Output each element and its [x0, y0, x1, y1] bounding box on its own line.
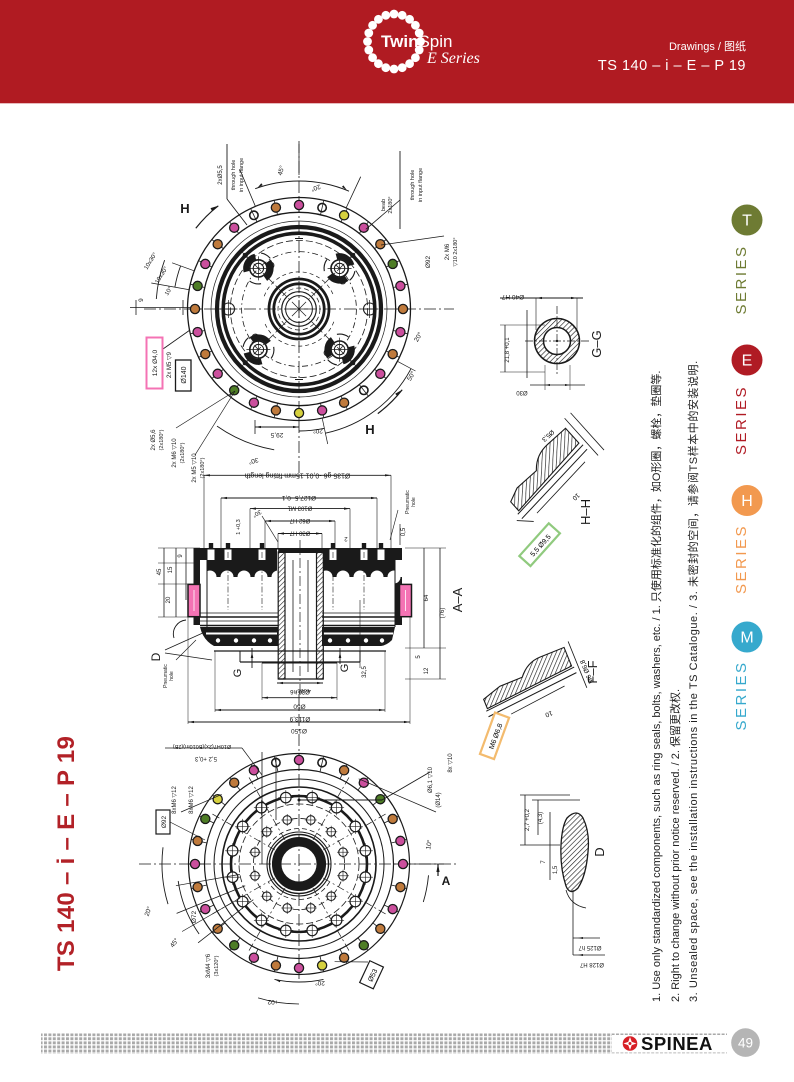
svg-text:3. Unsealed space, see the ins: 3. Unsealed space, see the installation … — [686, 360, 700, 1002]
svg-text:2x180°: 2x180° — [388, 196, 394, 213]
svg-text:Ø113,9: Ø113,9 — [289, 715, 310, 722]
svg-text:29,5: 29,5 — [270, 431, 283, 438]
svg-text:Ø72: Ø72 — [191, 910, 198, 923]
svg-text:F–F: F–F — [585, 660, 600, 683]
svg-text:Ø6,1 ▽10: Ø6,1 ▽10 — [428, 766, 434, 793]
svg-text:Drawings / 图纸: Drawings / 图纸 — [669, 40, 746, 53]
svg-text:H: H — [365, 422, 374, 437]
svg-text:20°: 20° — [313, 427, 323, 435]
svg-text:(4,3): (4,3) — [538, 812, 544, 824]
svg-text:Ø128 H7: Ø128 H7 — [579, 961, 604, 967]
svg-text:(3x120°): (3x120°) — [214, 955, 220, 976]
svg-text:H: H — [180, 201, 189, 216]
svg-text:8x ▽10: 8x ▽10 — [448, 753, 454, 773]
svg-text:1. Use only standardized compo: 1. Use only standardized components, suc… — [649, 371, 663, 1002]
svg-text:8xM6 ▽12: 8xM6 ▽12 — [172, 786, 178, 814]
svg-text:beab: beab — [381, 199, 387, 211]
svg-text:49: 49 — [738, 1036, 753, 1051]
svg-text:2,7 +0,2: 2,7 +0,2 — [525, 808, 531, 831]
svg-text:Ø30 H7: Ø30 H7 — [289, 530, 310, 536]
svg-text:2. Right to change without pri: 2. Right to change without prior notice … — [668, 689, 682, 1002]
svg-text:TwinSpin: TwinSpin — [381, 32, 452, 51]
svg-text:Ø125 h7: Ø125 h7 — [578, 944, 602, 950]
svg-text:TS 140 – i – E – P 19: TS 140 – i – E – P 19 — [598, 58, 746, 74]
svg-text:through hole: through hole — [410, 170, 416, 201]
svg-text:20: 20 — [166, 596, 172, 603]
svg-text:1,5: 1,5 — [553, 865, 559, 874]
svg-text:2x M5 ▽9: 2x M5 ▽9 — [167, 351, 173, 378]
svg-text:D: D — [592, 847, 607, 856]
svg-text:A–A: A–A — [450, 587, 465, 612]
svg-text:Ø30: Ø30 — [516, 389, 528, 395]
svg-text:G–G: G–G — [589, 330, 604, 357]
svg-text:32,5: 32,5 — [362, 666, 368, 678]
svg-text:Ø140: Ø140 — [181, 366, 188, 383]
svg-text:E Series: E Series — [426, 50, 480, 67]
svg-text:Ø92: Ø92 — [161, 815, 168, 828]
svg-text:hole: hole — [169, 671, 175, 681]
svg-text:45: 45 — [157, 568, 163, 575]
svg-text:G: G — [232, 669, 244, 678]
svg-text:H–H: H–H — [578, 499, 593, 525]
svg-text:G: G — [339, 664, 351, 673]
svg-text:8xM6 ▽12: 8xM6 ▽12 — [189, 786, 195, 814]
svg-text:2xØ5,5: 2xØ5,5 — [218, 165, 224, 185]
svg-text:9: 9 — [138, 298, 145, 302]
svg-text:▽10 2x180°: ▽10 2x180° — [453, 237, 459, 266]
svg-text:through hole: through hole — [231, 160, 237, 191]
svg-text:2x M5 ▽10: 2x M5 ▽10 — [192, 453, 198, 483]
svg-text:D: D — [149, 652, 163, 661]
svg-text:0,5: 0,5 — [401, 527, 407, 536]
svg-text:E: E — [742, 353, 753, 370]
svg-text:(2x180°): (2x180°) — [159, 429, 165, 450]
svg-text:Ø10H7(2x)(B010m)(2B): Ø10H7(2x)(B010m)(2B) — [173, 743, 232, 749]
svg-text:SERIES: SERIES — [733, 524, 750, 594]
svg-text:20°: 20° — [315, 979, 325, 987]
svg-text:12: 12 — [424, 667, 430, 674]
svg-text:64: 64 — [424, 594, 430, 601]
svg-text:SERIES: SERIES — [733, 660, 750, 730]
svg-text:(2x180°): (2x180°) — [180, 442, 186, 463]
svg-text:TS 140 – i – E – P 19: TS 140 – i – E – P 19 — [53, 736, 80, 971]
svg-text:5,2 +0,3: 5,2 +0,3 — [194, 755, 217, 761]
svg-text:(76): (76) — [440, 608, 446, 619]
svg-text:SERIES: SERIES — [733, 244, 750, 314]
svg-text:A: A — [442, 874, 451, 888]
svg-text:Ø127,5 -0,1: Ø127,5 -0,1 — [281, 494, 316, 501]
svg-text:SERIES: SERIES — [733, 385, 750, 455]
svg-text:in input flange: in input flange — [418, 168, 424, 202]
svg-text:Ø135 g6 -0,01 15mm fitting le: Ø135 g6 -0,01 15mm fitting length — [244, 471, 350, 478]
svg-text:Ø103 M1: Ø103 M1 — [287, 505, 312, 511]
svg-text:T: T — [742, 213, 752, 230]
svg-text:2x M6 ▽10: 2x M6 ▽10 — [172, 438, 178, 468]
svg-text:12x Ø4,0: 12x Ø4,0 — [152, 349, 159, 376]
svg-text:M: M — [740, 630, 753, 647]
svg-text:2x Ø5,6: 2x Ø5,6 — [151, 429, 157, 451]
svg-text:(Ø14): (Ø14) — [436, 792, 442, 807]
svg-text:4xM5°: 4xM5° — [295, 687, 311, 693]
svg-text:hole: hole — [411, 497, 417, 507]
svg-text:Ø40 H7: Ø40 H7 — [501, 293, 524, 300]
svg-text:2x M6: 2x M6 — [445, 243, 451, 260]
svg-text:Ø92: Ø92 — [425, 255, 432, 268]
svg-text:Ø62 H7: Ø62 H7 — [289, 517, 310, 523]
svg-text:15: 15 — [168, 566, 174, 573]
svg-text:SPINEA: SPINEA — [641, 1033, 713, 1054]
svg-text:21,8 +0,1: 21,8 +0,1 — [505, 337, 511, 363]
svg-text:1 +0,3: 1 +0,3 — [236, 519, 242, 534]
svg-text:H: H — [741, 493, 753, 510]
svg-text:3xM4 ▽6: 3xM4 ▽6 — [206, 953, 212, 978]
